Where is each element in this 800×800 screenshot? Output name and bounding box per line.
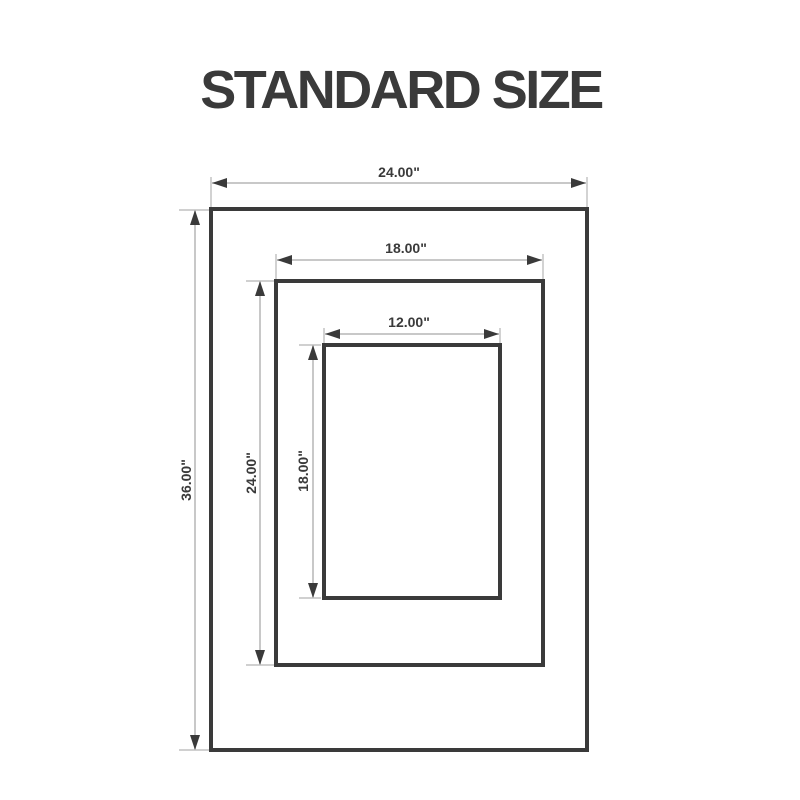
arrowhead-up-icon (255, 281, 265, 296)
diagram-canvas: STANDARD SIZE 24.00" 36.00" (0, 0, 800, 800)
page-title: STANDARD SIZE (200, 60, 602, 120)
inner-width-label: 12.00" (388, 314, 430, 330)
arrowhead-right-icon (484, 329, 499, 339)
arrowhead-right-icon (527, 255, 542, 265)
arrowhead-up-icon (190, 210, 200, 225)
arrowhead-left-icon (325, 329, 340, 339)
outer-width-dimension: 24.00" (211, 164, 587, 207)
middle-height-dimension: 24.00" (243, 281, 274, 665)
inner-width-dimension: 12.00" (324, 314, 500, 343)
middle-width-dimension: 18.00" (276, 240, 543, 279)
arrowhead-right-icon (571, 178, 586, 188)
arrowhead-up-icon (308, 345, 318, 360)
arrowhead-left-icon (277, 255, 292, 265)
middle-frame-rect (276, 281, 543, 665)
outer-frame-rect (211, 209, 587, 750)
inner-height-dimension: 18.00" (295, 345, 321, 598)
inner-frame-rect (324, 345, 500, 598)
inner-height-label: 18.00" (295, 450, 311, 492)
outer-height-label: 36.00" (178, 459, 194, 501)
inner-frame-group: 12.00" 18.00" (295, 314, 500, 598)
arrowhead-left-icon (212, 178, 227, 188)
outer-width-label: 24.00" (378, 164, 420, 180)
outer-frame-group: 24.00" 36.00" (178, 164, 587, 750)
arrowhead-down-icon (255, 650, 265, 665)
arrowhead-down-icon (190, 735, 200, 750)
middle-height-label: 24.00" (243, 452, 259, 494)
outer-height-dimension: 36.00" (178, 210, 209, 750)
arrowhead-down-icon (308, 583, 318, 598)
standard-size-diagram: STANDARD SIZE 24.00" 36.00" (0, 0, 800, 800)
middle-width-label: 18.00" (385, 240, 427, 256)
